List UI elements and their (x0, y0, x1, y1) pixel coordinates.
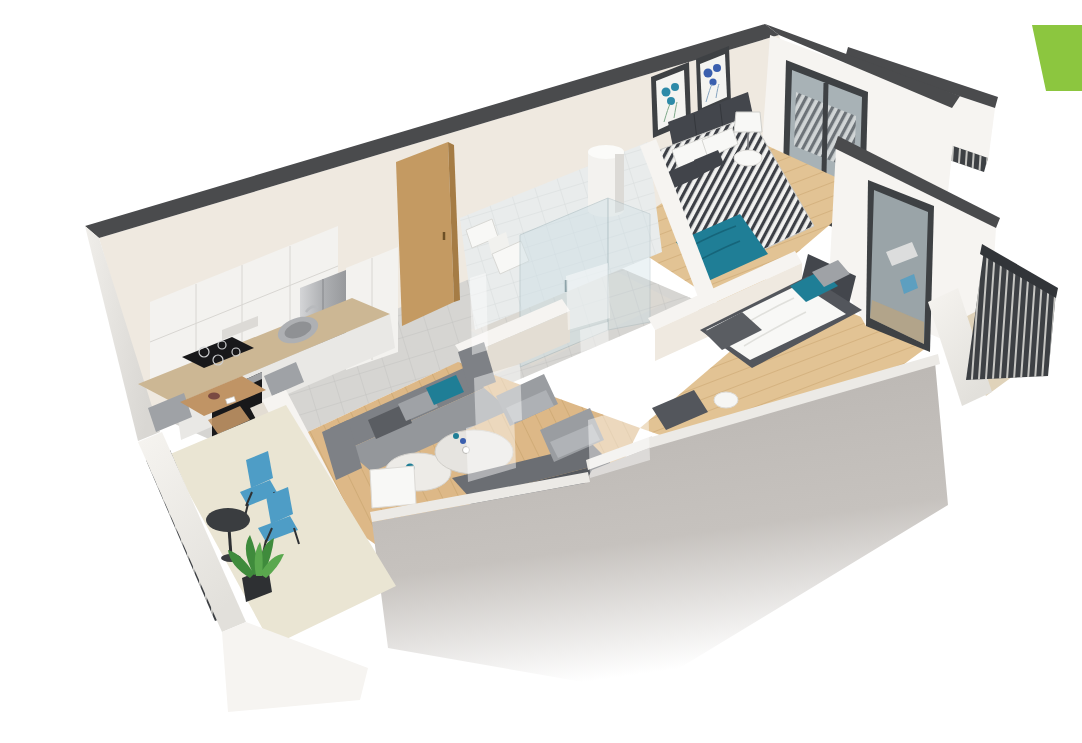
art-flower (671, 83, 679, 91)
watermark-bar (580, 322, 610, 386)
table-top (206, 508, 250, 532)
decor-vase-blue (460, 438, 466, 444)
watermark-bar (470, 273, 488, 355)
round-nightstand (734, 150, 762, 166)
green-corner-accent (1032, 25, 1082, 91)
entrance (396, 142, 460, 326)
terrace-parapet-front (222, 622, 368, 712)
balcony-door (866, 180, 934, 352)
dining-plate (208, 393, 220, 400)
decor-vase-teal (453, 433, 459, 439)
entrance-door (396, 142, 454, 326)
floorplan-render (0, 0, 1082, 743)
lamp-shade (734, 112, 762, 132)
art-flower (667, 97, 675, 105)
floorplan-canvas (0, 0, 1082, 743)
art-flower (704, 69, 713, 78)
art-flower (662, 88, 671, 97)
shower-glass-side (608, 198, 650, 330)
side-table (714, 392, 738, 408)
art-flower (709, 78, 716, 85)
art-flower (713, 64, 721, 72)
lamp-drum-shade (370, 466, 416, 508)
